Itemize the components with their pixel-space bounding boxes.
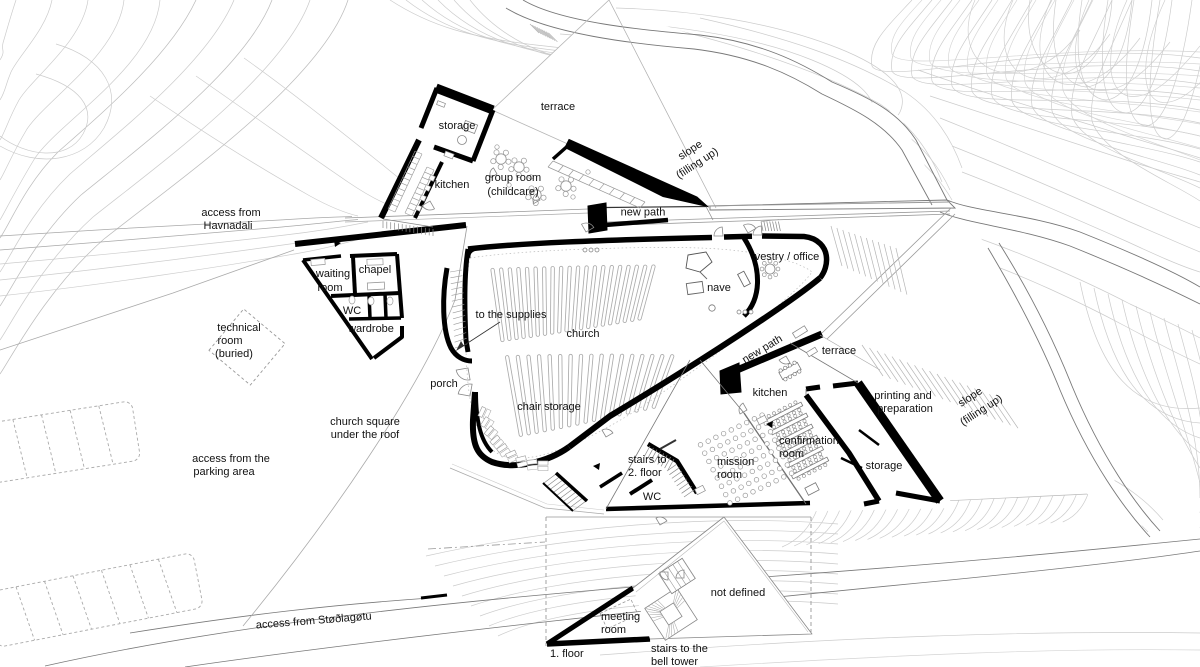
- svg-text:waiting: waiting: [315, 268, 350, 280]
- svg-text:wardrobe: wardrobe: [347, 323, 394, 335]
- svg-text:storage: storage: [866, 460, 903, 472]
- svg-text:room: room: [317, 282, 342, 294]
- svg-text:mission: mission: [717, 456, 754, 468]
- svg-text:room: room: [779, 448, 804, 460]
- svg-text:2. floor: 2. floor: [628, 467, 662, 479]
- svg-text:meeting: meeting: [601, 611, 640, 623]
- svg-text:not defined: not defined: [711, 587, 765, 599]
- svg-text:WC: WC: [643, 491, 661, 503]
- svg-text:storage: storage: [439, 120, 476, 132]
- svg-text:parking area: parking area: [193, 466, 255, 478]
- svg-text:preparation: preparation: [877, 403, 933, 415]
- svg-text:terrace: terrace: [541, 101, 575, 113]
- svg-text:kitchen: kitchen: [753, 387, 788, 399]
- svg-text:nave: nave: [707, 282, 731, 294]
- svg-text:room: room: [217, 335, 242, 347]
- svg-text:church square: church square: [330, 416, 400, 428]
- svg-text:access from: access from: [201, 207, 260, 219]
- svg-text:access from the: access from the: [192, 453, 270, 465]
- svg-text:technical: technical: [217, 322, 260, 334]
- svg-text:kitchen: kitchen: [435, 179, 470, 191]
- svg-text:Havnadali: Havnadali: [204, 220, 253, 232]
- svg-text:bell tower: bell tower: [651, 656, 698, 667]
- svg-text:(buried): (buried): [215, 348, 253, 360]
- svg-text:stairs to the: stairs to the: [651, 643, 708, 655]
- svg-text:chapel: chapel: [359, 264, 391, 276]
- svg-text:vestry / office: vestry / office: [755, 251, 820, 263]
- svg-text:church: church: [566, 328, 599, 340]
- svg-text:chair storage: chair storage: [517, 401, 581, 413]
- svg-text:1. floor: 1. floor: [550, 648, 584, 660]
- svg-text:(childcare): (childcare): [487, 186, 538, 198]
- svg-text:terrace: terrace: [822, 345, 856, 357]
- svg-text:room: room: [601, 624, 626, 636]
- svg-text:room: room: [717, 469, 742, 481]
- svg-text:confirmation: confirmation: [779, 435, 839, 447]
- svg-text:under the roof: under the roof: [331, 429, 400, 441]
- svg-text:WC: WC: [343, 305, 361, 317]
- svg-text:porch: porch: [430, 378, 458, 390]
- svg-text:stairs to: stairs to: [628, 454, 667, 466]
- svg-text:to the supplies: to the supplies: [476, 309, 547, 321]
- svg-text:printing and: printing and: [874, 390, 932, 402]
- svg-text:group room: group room: [485, 172, 541, 184]
- svg-text:new path: new path: [621, 207, 666, 219]
